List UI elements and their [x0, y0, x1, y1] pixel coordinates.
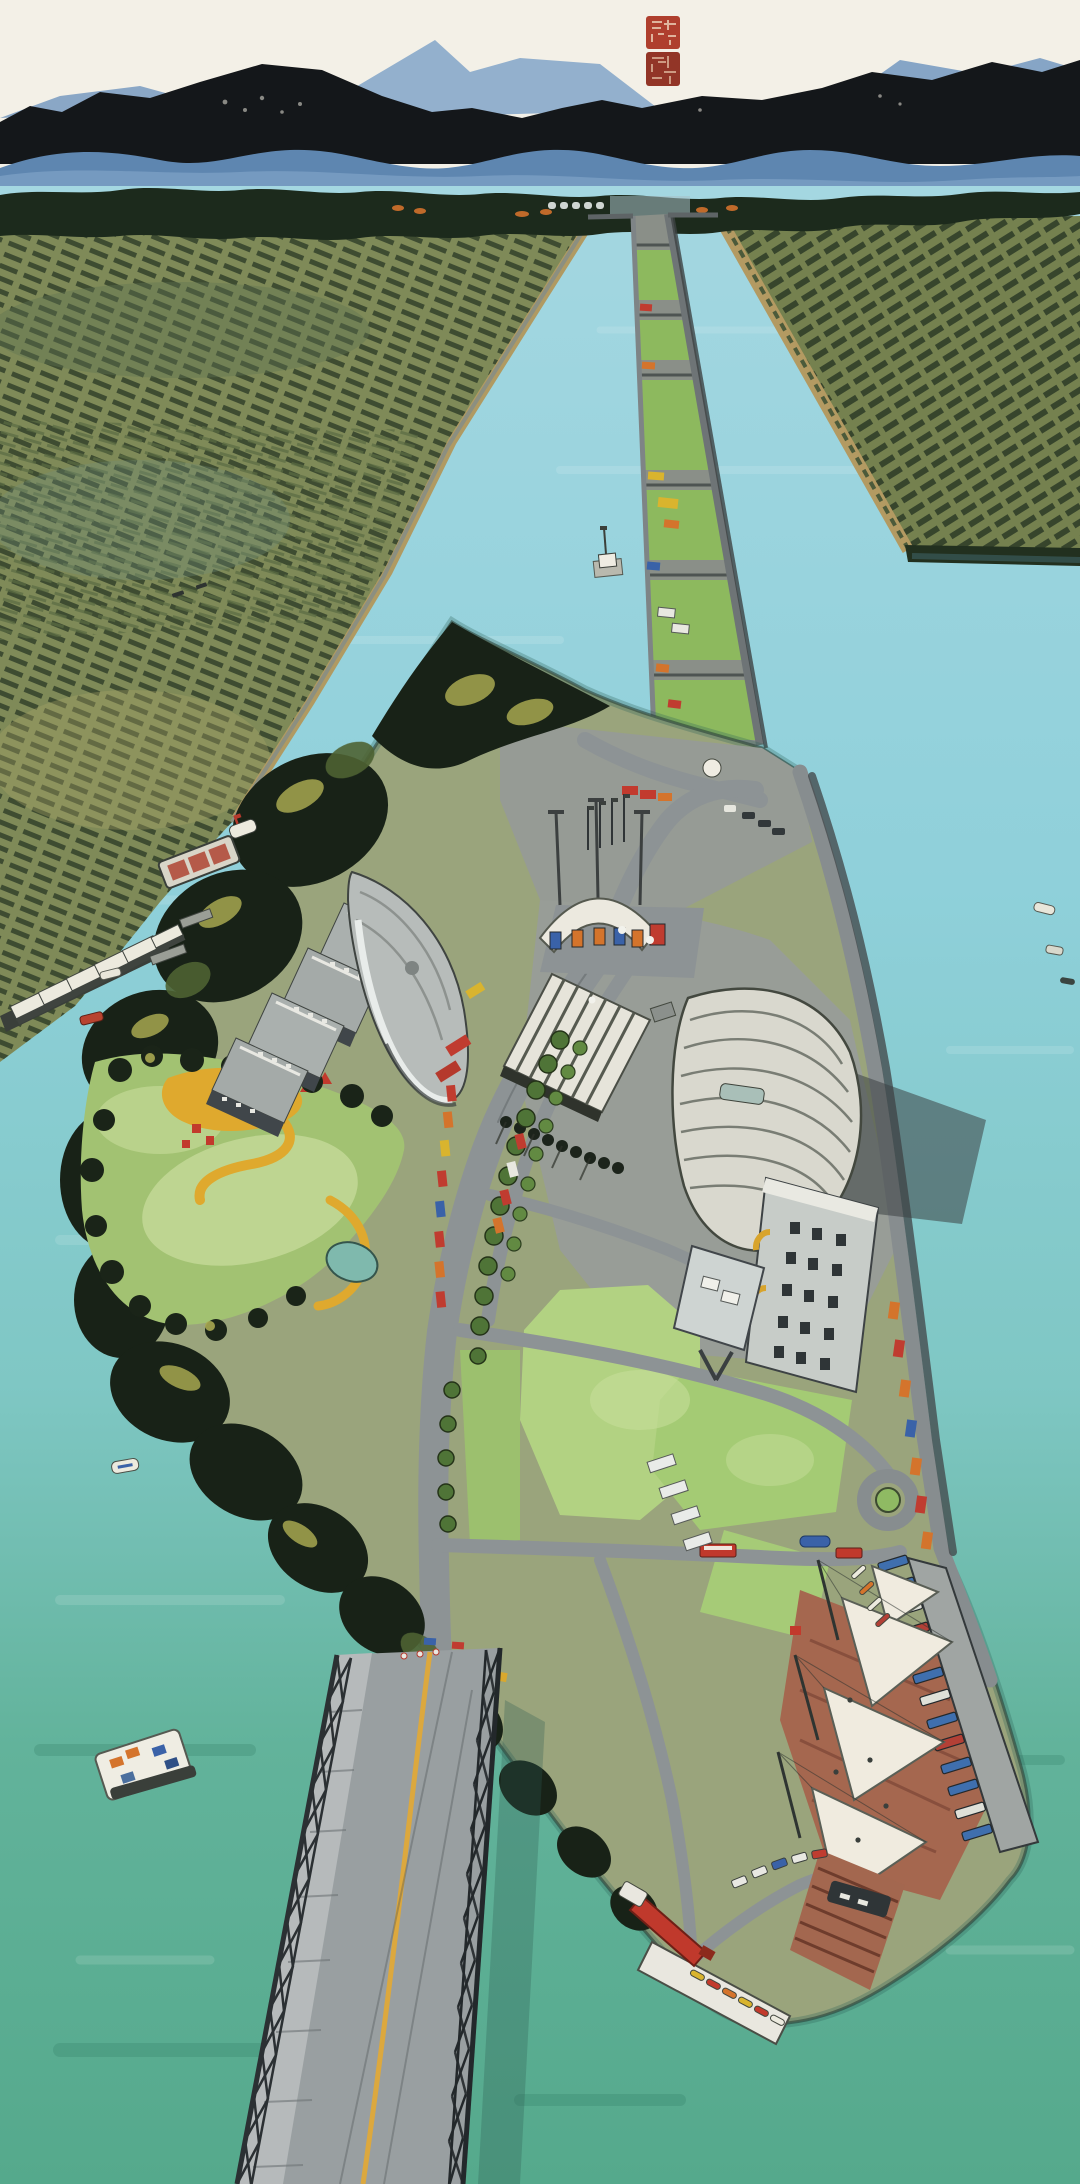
tall-mill-building	[746, 1178, 878, 1392]
blue-tanker	[800, 1536, 830, 1547]
upper-seal	[646, 16, 680, 49]
red-shuttle-bus	[700, 1544, 736, 1557]
lower-seal	[646, 52, 680, 86]
painting	[0, 0, 1080, 2184]
